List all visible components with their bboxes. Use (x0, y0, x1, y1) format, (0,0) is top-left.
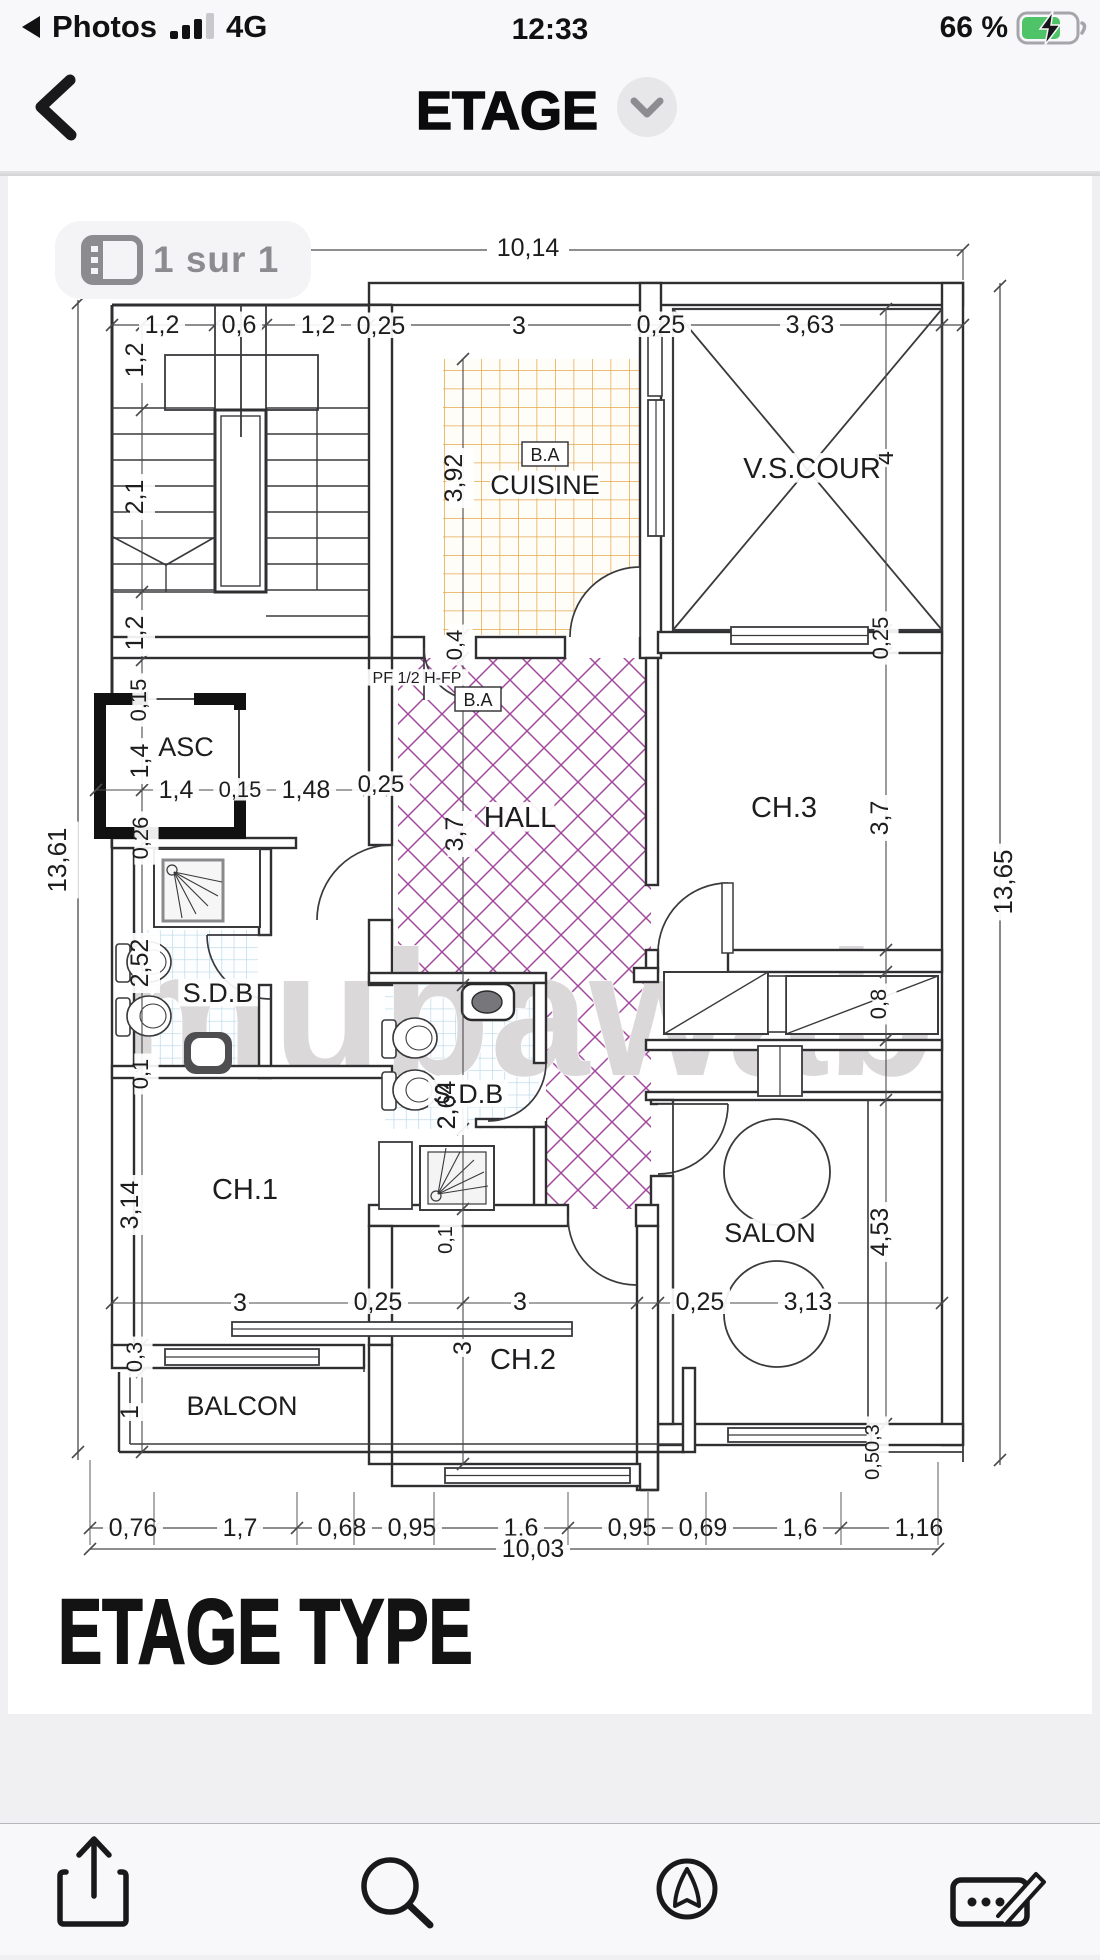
svg-text:1,2: 1,2 (145, 311, 180, 339)
svg-text:3: 3 (233, 1289, 247, 1317)
svg-text:S.D.B: S.D.B (183, 978, 254, 1008)
svg-text:0,95: 0,95 (608, 1514, 657, 1542)
svg-text:0,6: 0,6 (222, 311, 257, 339)
svg-text:0,25: 0,25 (354, 1288, 403, 1316)
svg-text:2,52: 2,52 (126, 939, 154, 988)
svg-text:3: 3 (512, 312, 526, 340)
svg-text:0,69: 0,69 (679, 1514, 728, 1542)
svg-text:CUISINE: CUISINE (490, 470, 600, 500)
svg-text:1: 1 (116, 1405, 144, 1419)
svg-text:0,50,3: 0,50,3 (862, 1424, 884, 1480)
svg-text:1,48: 1,48 (282, 776, 331, 804)
svg-text:0,25: 0,25 (357, 312, 406, 340)
svg-text:CH.2: CH.2 (490, 1344, 556, 1376)
svg-text:0,4: 0,4 (442, 630, 467, 661)
svg-text:3,14: 3,14 (116, 1181, 144, 1230)
svg-text:BALCON: BALCON (186, 1391, 297, 1421)
svg-text:0,15: 0,15 (219, 777, 262, 802)
svg-text:2,1: 2,1 (121, 480, 149, 515)
svg-text:3: 3 (449, 1341, 477, 1355)
svg-text:SALON: SALON (724, 1218, 816, 1248)
svg-text:0,15: 0,15 (126, 679, 151, 722)
svg-text:1,2: 1,2 (301, 311, 336, 339)
svg-text:1,2: 1,2 (121, 343, 149, 378)
svg-text:ASC: ASC (158, 732, 214, 762)
svg-text:13,65: 13,65 (988, 849, 1018, 914)
svg-text:1,6: 1,6 (783, 1514, 818, 1542)
svg-text:0,25: 0,25 (868, 617, 893, 660)
svg-text:0,25: 0,25 (358, 771, 405, 798)
svg-text:0,25: 0,25 (676, 1288, 725, 1316)
svg-text:HALL: HALL (484, 802, 557, 834)
svg-text:0,25: 0,25 (637, 311, 686, 339)
svg-text:2,64: 2,64 (433, 1081, 461, 1130)
svg-text:0,1: 0,1 (435, 1226, 457, 1254)
svg-text:0,68: 0,68 (318, 1514, 367, 1542)
svg-text:3,92: 3,92 (440, 454, 468, 503)
svg-text:1,4: 1,4 (126, 744, 154, 779)
svg-text:1,2: 1,2 (121, 616, 149, 651)
svg-text:4,53: 4,53 (866, 1208, 894, 1257)
svg-text:10,14: 10,14 (497, 234, 560, 262)
svg-text:0,95: 0,95 (388, 1514, 437, 1542)
svg-text:3,63: 3,63 (786, 311, 835, 339)
svg-text:0,1: 0,1 (128, 1059, 153, 1090)
svg-text:3,7: 3,7 (441, 817, 469, 852)
svg-text:3,13: 3,13 (784, 1288, 833, 1316)
svg-text:0,26: 0,26 (128, 817, 153, 860)
svg-text:0,3: 0,3 (122, 1342, 147, 1373)
svg-text:3: 3 (513, 1288, 527, 1316)
svg-text:B.A: B.A (530, 445, 559, 465)
svg-text:0,8: 0,8 (866, 989, 891, 1020)
svg-text:13,61: 13,61 (42, 827, 72, 892)
svg-text:10,03: 10,03 (502, 1535, 565, 1563)
svg-text:1,4: 1,4 (159, 776, 194, 804)
svg-text:CH.1: CH.1 (212, 1174, 278, 1206)
svg-text:3,7: 3,7 (866, 801, 894, 836)
svg-text:CH.3: CH.3 (751, 792, 817, 824)
svg-text:0,76: 0,76 (109, 1514, 158, 1542)
svg-text:B.A: B.A (463, 690, 492, 710)
svg-text:PF 1/2 H-FP: PF 1/2 H-FP (373, 670, 462, 687)
svg-text:1,16: 1,16 (895, 1514, 944, 1542)
svg-text:1,7: 1,7 (223, 1514, 258, 1542)
svg-text:V.S.COUR: V.S.COUR (743, 453, 881, 485)
